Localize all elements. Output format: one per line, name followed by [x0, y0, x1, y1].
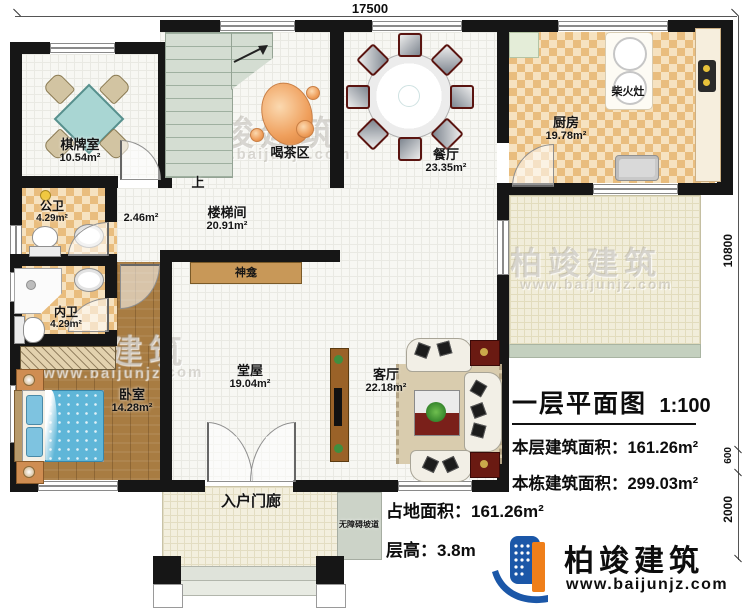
dining-table-center: [398, 85, 420, 107]
floor-area-line: 本层建筑面积：161.26m²: [512, 434, 742, 458]
brand-website: www.baijunjz.com: [566, 576, 728, 594]
plan-scale: 1:100: [659, 395, 710, 417]
title-underline: [512, 423, 696, 425]
dimension-right-steps: 2000: [721, 496, 735, 523]
shower-drain: [26, 280, 36, 290]
dimension-top-width: 17500: [334, 1, 406, 16]
wall: [330, 20, 344, 188]
plant: [426, 402, 446, 422]
window: [558, 21, 668, 31]
dimension-line-top: [15, 16, 737, 17]
window: [50, 43, 115, 53]
room-label-living: 客厅22.18m²: [348, 368, 424, 394]
room-label-hall: 堂屋19.04m²: [212, 364, 288, 390]
tv: [334, 388, 342, 426]
window: [220, 21, 295, 31]
brand-logo-icon: [492, 534, 558, 604]
floor-plan: 柏竣建筑 www.baijunjz.com 柏竣建筑 www.baijunjz.…: [0, 0, 750, 611]
side-table-lamp: [480, 460, 488, 468]
wall: [678, 183, 733, 195]
wall: [10, 176, 118, 188]
tea-stone: [306, 86, 320, 100]
burner: [703, 79, 710, 86]
porch-column: [153, 556, 181, 584]
kitchen-sink: [615, 155, 659, 181]
label-nook-area: 2.46m²: [112, 212, 170, 224]
kitchen-counter: [695, 28, 721, 182]
window: [10, 225, 22, 255]
patio-edge-strip: [509, 344, 701, 358]
bathroom-sink: [74, 268, 104, 292]
total-area-line: 本栋建筑面积：299.03m²: [512, 470, 742, 494]
window: [497, 220, 509, 275]
stair-direction-arrow: [230, 36, 274, 68]
wall: [160, 250, 172, 480]
window: [593, 184, 678, 194]
patio-floor: [509, 195, 701, 357]
brand-logo: 柏竣建筑 www.baijunjz.com: [492, 534, 742, 606]
porch-step-2: [170, 580, 330, 596]
chair: [346, 85, 370, 109]
lamp: [23, 466, 35, 478]
room-label-ensuite-bath: 内卫4.29m²: [36, 306, 96, 330]
shrine-label: 神龛: [235, 267, 257, 279]
chair: [398, 33, 422, 57]
room-label-porch: 入户门廊: [206, 494, 296, 511]
plant: [334, 355, 343, 364]
room-label-public-bath: 公卫4.29m²: [22, 200, 82, 224]
window: [38, 481, 118, 491]
wall: [293, 480, 398, 492]
wall: [118, 480, 205, 492]
room-label-tea: 喝茶区: [256, 146, 324, 160]
wood-stove-pot: [613, 37, 647, 71]
wardrobe: [20, 346, 116, 370]
label-stairs-up: 上: [188, 176, 208, 190]
porch-column-base: [316, 584, 346, 608]
toilet-tank: [29, 246, 61, 257]
sofa-bench: [410, 450, 472, 482]
label-ramp: 无障碍坡道: [334, 521, 384, 530]
wall: [497, 20, 509, 143]
room-label-chess: 棋牌室10.54m²: [30, 138, 130, 164]
kitchen-cabinet: [509, 32, 539, 58]
side-table-lamp: [480, 348, 488, 356]
brand-name: 柏竣建筑: [564, 536, 704, 580]
room-label-kitchen: 厨房19.78m²: [528, 116, 604, 142]
wall: [497, 195, 509, 220]
porch-column-base: [153, 584, 183, 608]
footprint-line: 占地面积：161.26m²: [386, 497, 544, 522]
room-label-dining: 餐厅23.35m²: [408, 148, 484, 174]
bed-pillow: [26, 427, 43, 457]
label-wood-stove: 柴火灶: [596, 86, 660, 98]
plant: [334, 444, 343, 453]
toilet: [32, 226, 58, 248]
titleblock: 一层平面图 1:100 本层建筑面积：161.26m² 本栋建筑面积：299.0…: [512, 384, 742, 494]
height-line: 层高：3.8m: [386, 536, 476, 561]
chair: [450, 85, 474, 109]
tea-stone: [296, 120, 314, 138]
plan-title: 一层平面图: [512, 390, 647, 418]
bed-pillow: [26, 395, 43, 425]
lamp: [23, 374, 35, 386]
wall: [160, 250, 340, 262]
staircase: [165, 32, 233, 178]
dimension-right-main: 10800: [721, 234, 735, 267]
window: [372, 21, 462, 31]
wall: [160, 20, 220, 32]
bed-duvet-fold: [45, 390, 57, 460]
porch-column: [316, 556, 344, 584]
room-label-stairwell: 楼梯间20.91m²: [192, 206, 262, 232]
tea-stone: [250, 128, 264, 142]
shrine-shelf: 神龛: [190, 262, 302, 284]
window: [398, 481, 472, 491]
room-label-bedroom: 卧室14.28m²: [94, 388, 170, 414]
burner: [703, 65, 710, 72]
wall: [462, 20, 558, 32]
